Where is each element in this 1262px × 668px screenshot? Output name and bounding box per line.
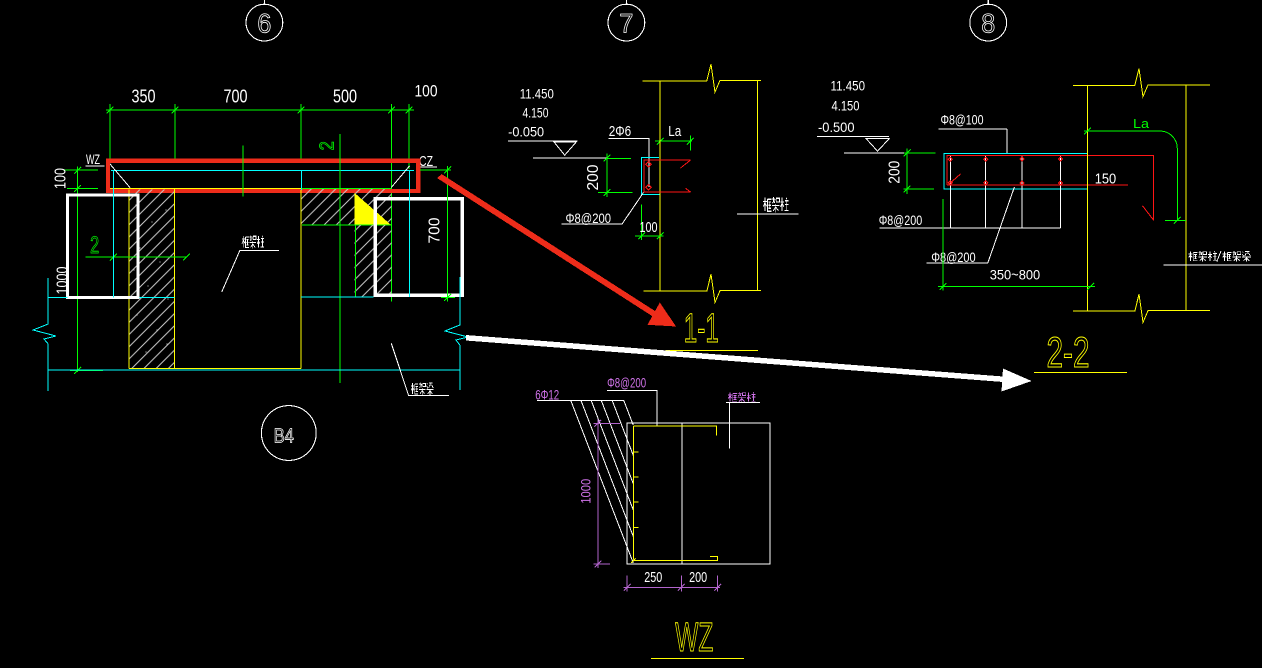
svg-text:350: 350 (132, 87, 156, 107)
svg-text:700: 700 (427, 217, 444, 243)
svg-text:WZ: WZ (86, 151, 100, 167)
svg-text:Φ8@100: Φ8@100 (941, 112, 984, 128)
svg-text:100: 100 (415, 82, 438, 101)
svg-text:11.450: 11.450 (831, 78, 866, 93)
svg-text:350~800: 350~800 (990, 266, 1041, 282)
svg-text:250: 250 (644, 569, 662, 586)
svg-text:B4: B4 (274, 425, 294, 447)
svg-text:200: 200 (585, 164, 602, 190)
svg-text:2Φ6: 2Φ6 (609, 123, 632, 140)
svg-text:700: 700 (224, 87, 248, 107)
svg-text:8: 8 (981, 8, 995, 38)
svg-text:2-2: 2-2 (1047, 329, 1090, 377)
svg-text:-0.500: -0.500 (818, 119, 855, 135)
svg-text:11.450: 11.450 (520, 87, 554, 102)
svg-text:La: La (1133, 116, 1150, 131)
svg-text:6: 6 (257, 8, 271, 38)
svg-text:100: 100 (640, 219, 658, 236)
svg-text:500: 500 (333, 87, 357, 107)
svg-text:150: 150 (1095, 172, 1117, 188)
svg-text:-0.050: -0.050 (508, 124, 544, 140)
svg-text:WZ: WZ (675, 614, 713, 660)
svg-text:Φ8@200: Φ8@200 (879, 212, 923, 228)
svg-text:4.150: 4.150 (832, 98, 860, 114)
svg-text:2: 2 (90, 232, 99, 259)
svg-text:La: La (668, 123, 682, 140)
svg-text:7: 7 (619, 8, 633, 38)
svg-text:Φ8@200: Φ8@200 (607, 375, 646, 391)
svg-text:100: 100 (53, 168, 70, 189)
svg-text:4.150: 4.150 (523, 106, 549, 121)
svg-text:2: 2 (317, 141, 339, 150)
svg-text:200: 200 (689, 569, 707, 586)
svg-text:200: 200 (886, 161, 903, 184)
svg-text:1000: 1000 (578, 479, 594, 504)
svg-text:1-1: 1-1 (684, 305, 719, 351)
